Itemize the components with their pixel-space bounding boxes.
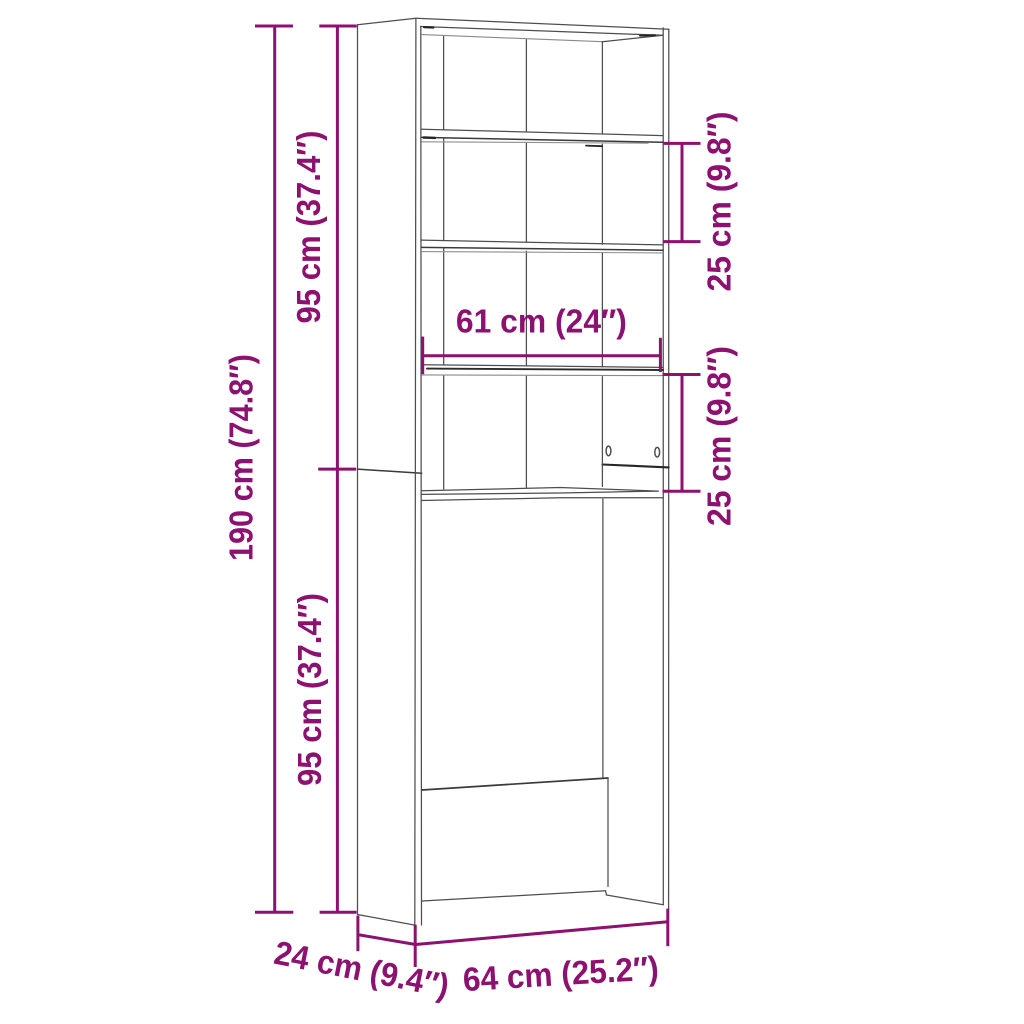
svg-text:25 cm (9.8″): 25 cm (9.8″) [701, 112, 738, 292]
svg-text:61 cm (24″): 61 cm (24″) [456, 303, 627, 340]
svg-text:95 cm (37.4″): 95 cm (37.4″) [291, 131, 328, 324]
svg-text:95 cm (37.4″): 95 cm (37.4″) [292, 593, 329, 786]
svg-text:25 cm (9.8″): 25 cm (9.8″) [701, 346, 738, 526]
svg-text:190 cm (74.8″): 190 cm (74.8″) [223, 354, 260, 561]
